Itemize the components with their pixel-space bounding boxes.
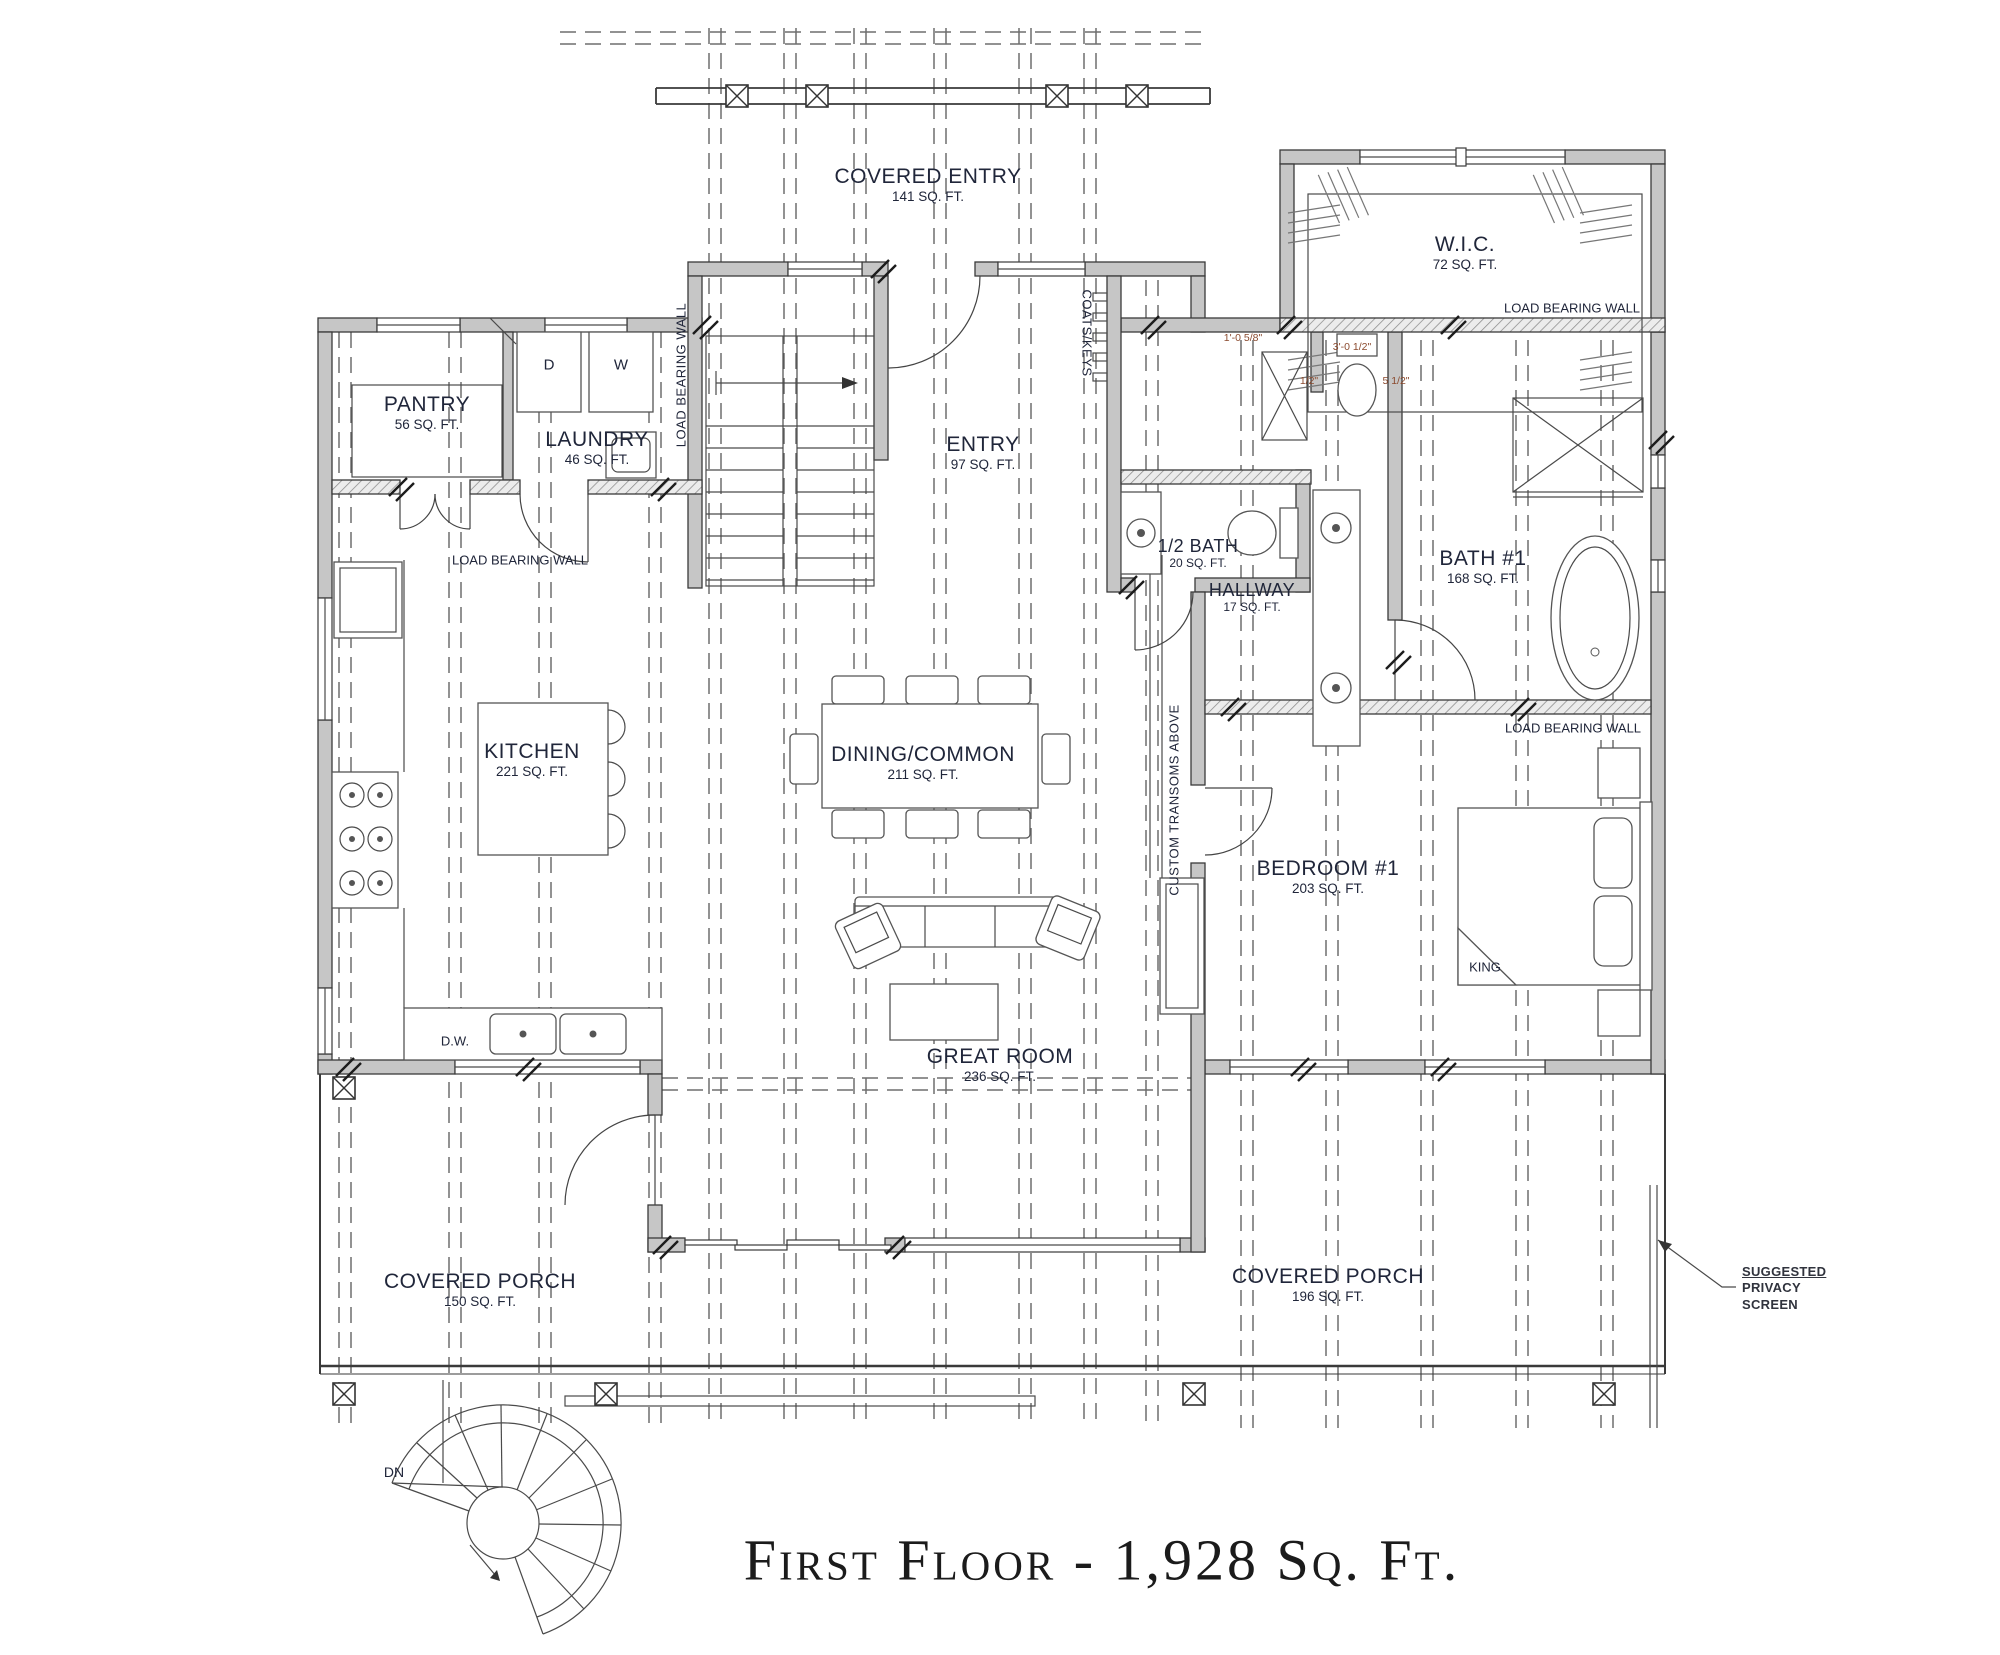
covered-entry-area: 141 SQ. FT. [835, 189, 1022, 205]
room-label-kitchen: KITCHEN 221 SQ. FT. [484, 740, 580, 780]
coats-keys-label: COATS/KEYS [1080, 289, 1095, 376]
floor-plan-page: COVERED ENTRY 141 SQ. FT. W.I.C. 72 SQ. … [0, 0, 2000, 1655]
load-bearing-wall-label-laundry: LOAD BEARING WALL [674, 303, 689, 448]
floor-plan-drawing [0, 0, 2000, 1655]
sheet-title: First Floor - 1,928 Sq. Ft. [744, 1527, 1460, 1594]
washer-label: W [614, 357, 628, 374]
king-bed-label: KING [1469, 960, 1501, 975]
load-bearing-wall-label-bedroom: LOAD BEARING WALL [1505, 721, 1641, 736]
room-label-great-room: GREAT ROOM 236 SQ. FT. [927, 1045, 1074, 1085]
kitchen-fixtures [332, 560, 662, 1060]
spiral-staircase [392, 1380, 621, 1634]
dimension-label-1: 1'-0 5/8" [1224, 332, 1262, 344]
dimension-label-3: 5 1/2" [1382, 375, 1409, 387]
load-bearing-wall-label-wic: LOAD BEARING WALL [1504, 301, 1640, 316]
room-label-dining: DINING/COMMON 211 SQ. FT. [831, 743, 1015, 783]
room-label-bedroom1: BEDROOM #1 203 SQ. FT. [1257, 857, 1400, 897]
room-label-half-bath: 1/2 BATH 20 SQ. FT. [1158, 536, 1239, 570]
spiral-stair-dn-label: DN [384, 1464, 404, 1480]
room-label-pantry: PANTRY 56 SQ. FT. [384, 393, 470, 433]
dimension-label-4: 1/2" [1300, 375, 1318, 387]
room-label-porch-left: COVERED PORCH 150 SQ. FT. [384, 1270, 576, 1310]
room-label-entry: ENTRY 97 SQ. FT. [946, 433, 1019, 473]
room-label-porch-right: COVERED PORCH 196 SQ. FT. [1232, 1265, 1424, 1305]
room-label-wic: W.I.C. 72 SQ. FT. [1433, 233, 1498, 273]
covered-entry-name: COVERED ENTRY [835, 165, 1022, 189]
load-bearing-wall-label-kitchen: LOAD BEARING WALL [452, 553, 588, 568]
room-label-covered-entry: COVERED ENTRY 141 SQ. FT. [835, 165, 1022, 205]
room-label-laundry: LAUNDRY 46 SQ. FT. [545, 428, 648, 468]
privacy-screen [1650, 1185, 1736, 1428]
custom-transoms-label: CUSTOM TRANSOMS ABOVE [1167, 704, 1182, 895]
coat-hooks [1093, 293, 1107, 381]
room-label-hallway: HALLWAY 17 SQ. FT. [1209, 580, 1295, 614]
privacy-screen-note: SUGGESTED PRIVACY SCREEN [1742, 1264, 1826, 1313]
dishwasher-label: D.W. [441, 1034, 469, 1049]
dimension-label-2: 3'-0 1/2" [1333, 341, 1371, 353]
covered-entry-structure [656, 85, 1210, 107]
dryer-label: D [544, 357, 555, 374]
main-staircase [706, 336, 874, 586]
room-label-bath1: BATH #1 168 SQ. FT. [1439, 547, 1526, 587]
